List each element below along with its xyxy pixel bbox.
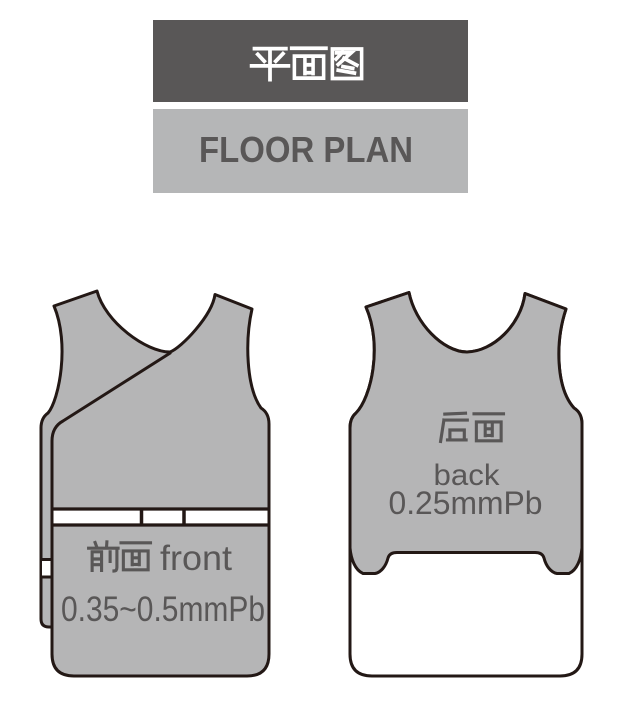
svg-text:front: front: [160, 539, 232, 578]
svg-text:0.35~0.5mmPb: 0.35~0.5mmPb: [61, 590, 265, 629]
svg-text:FLOOR PLAN: FLOOR PLAN: [199, 129, 413, 170]
svg-text:0.25mmPb: 0.25mmPb: [389, 485, 543, 521]
